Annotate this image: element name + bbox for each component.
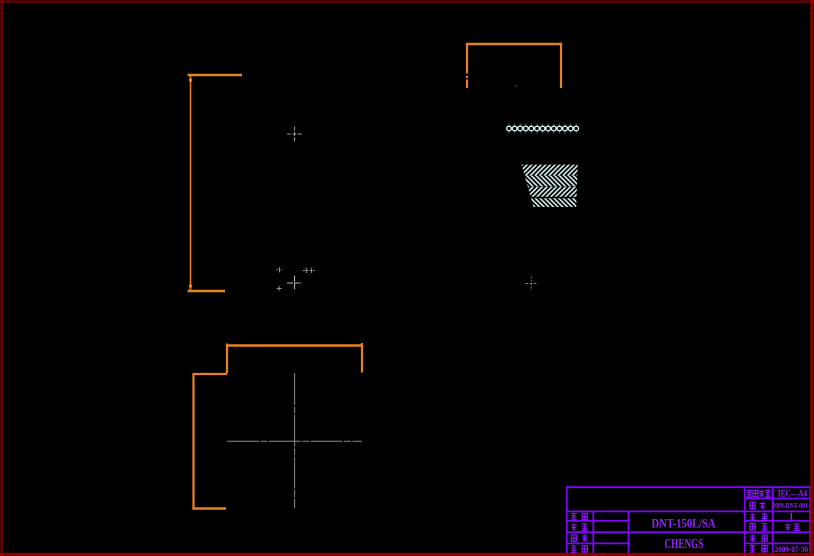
svg-text:2009-07-30: 2009-07-30 [775, 544, 809, 554]
svg-text:2009-DNT-001: 2009-DNT-001 [772, 501, 808, 510]
svg-text:1: 1 [789, 512, 794, 522]
svg-text:DNT-150L/SA: DNT-150L/SA [652, 516, 716, 531]
svg-text:CHENGS: CHENGS [665, 536, 704, 551]
svg-text:IEC—A4: IEC—A4 [778, 488, 808, 498]
